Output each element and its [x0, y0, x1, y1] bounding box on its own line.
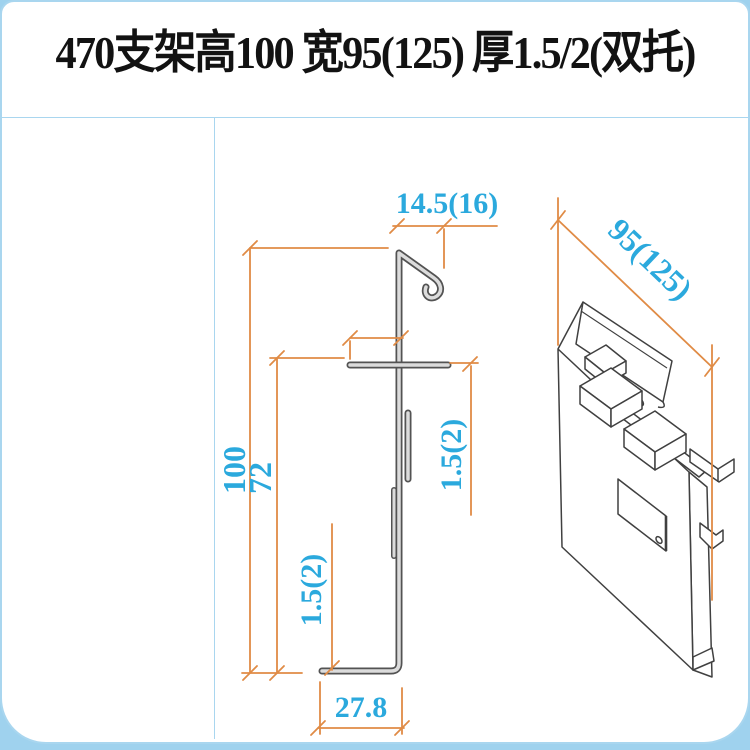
- page-frame: 470支架高100 宽95(125) 厚1.5/2(双托): [0, 0, 750, 750]
- bracket-3d: [558, 302, 734, 677]
- section-view: 14.5(16) 100 72 1.5(2) 1.5(2) 27.8: [216, 187, 498, 735]
- dim-label-base-thickness: 1.5(2): [295, 554, 328, 626]
- dim-label-base-width: 27.8: [335, 691, 388, 724]
- dim-label-hook-width: 14.5(16): [396, 187, 498, 220]
- technical-drawing: 14.5(16) 100 72 1.5(2) 1.5(2) 27.8: [0, 0, 750, 750]
- dim-label-flange-thickness: 1.5(2): [435, 419, 468, 491]
- dim-label-plate-width: 95(125): [601, 211, 699, 307]
- bracket-profile: [322, 253, 448, 671]
- dim-label-lower-height: 72: [242, 462, 278, 494]
- iso-view: 95(125): [551, 198, 734, 677]
